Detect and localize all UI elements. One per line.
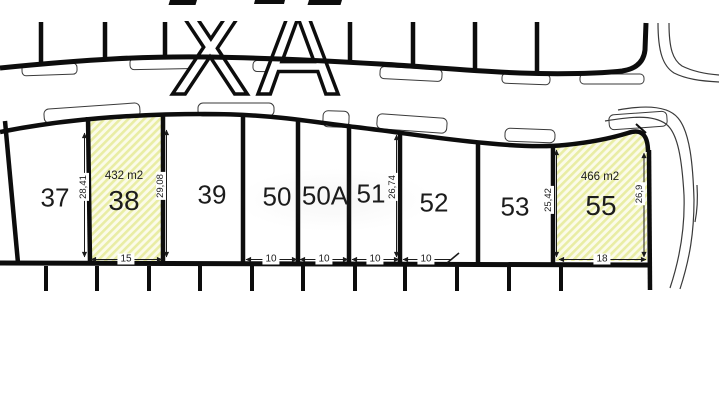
plot-east-edge (649, 150, 650, 290)
plot-38-label: 38 (108, 185, 139, 217)
letter-fragment (254, 0, 285, 4)
plot-51-label: 51 (357, 179, 386, 210)
plot-55-area: 466 m2 (581, 171, 619, 183)
plot-39-label: 39 (198, 180, 227, 211)
plot-51-right-depth-dim: 26,74 (388, 173, 398, 201)
plot-50-width-dim: 10 (262, 254, 279, 265)
cross-street-curves (658, 23, 719, 82)
plot-50A-width-dim: 10 (315, 254, 332, 265)
plot-51-width-dim: 10 (366, 254, 383, 265)
letter-fragment (308, 0, 343, 5)
plot-38-area: 432 m2 (105, 170, 143, 182)
plot-55-right-depth-dim: 26,9 (635, 183, 645, 206)
plot-52-label: 52 (420, 188, 449, 219)
plot-55-label: 55 (585, 190, 616, 222)
plot-55-left-depth-dim: 25,42 (544, 186, 554, 214)
plot-38-left-depth-dim: 28,41 (79, 173, 89, 201)
plot-52-width-dim: 10 (417, 254, 434, 265)
plot-50A-label: 50A (302, 181, 348, 212)
letter-fragment (169, 0, 198, 5)
plot-west-edge (5, 121, 18, 263)
plot-50-label: 50 (263, 182, 292, 213)
plot-55-width-dim: 18 (593, 254, 610, 265)
plot-38-width-dim: 15 (117, 254, 134, 265)
plot-53-label: 53 (501, 192, 530, 223)
next-row-divider-stubs (46, 266, 561, 291)
plat-map: XA (0, 0, 720, 420)
plot-38-right-depth-dim: 29,08 (156, 172, 166, 200)
plot-37-label: 37 (41, 183, 70, 214)
